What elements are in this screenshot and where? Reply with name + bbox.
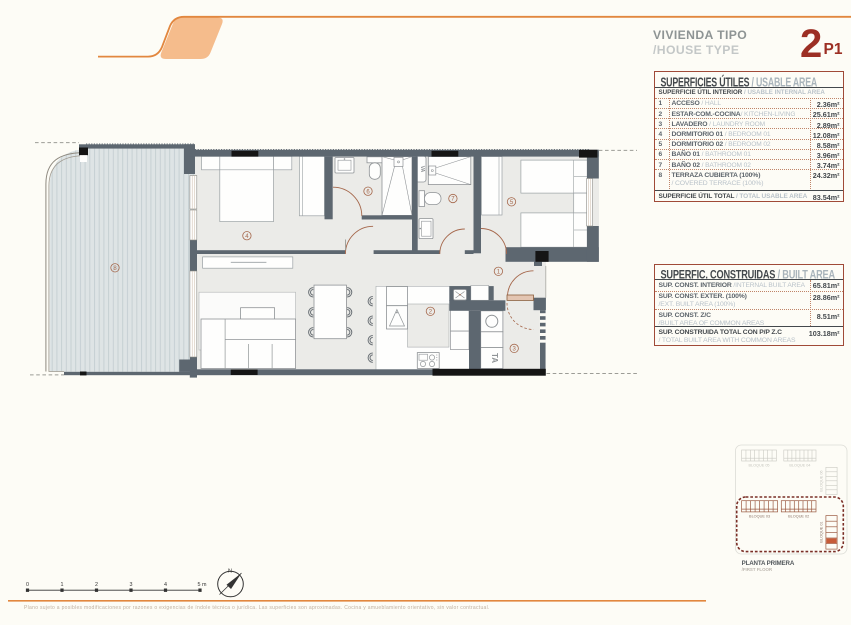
svg-text:1: 1 <box>61 582 64 588</box>
svg-text:BLOQUE 03: BLOQUE 03 <box>749 515 770 519</box>
svg-text:3: 3 <box>130 582 133 588</box>
svg-text:N: N <box>228 569 232 575</box>
svg-text:/FIRST FLOOR: /FIRST FLOOR <box>742 567 773 572</box>
svg-text:2: 2 <box>95 582 98 588</box>
svg-text:BLOQUE 05: BLOQUE 05 <box>748 464 769 468</box>
svg-text:BLOQUE 02: BLOQUE 02 <box>788 515 809 519</box>
svg-text:0: 0 <box>26 582 29 588</box>
svg-text:BLOQUE 04: BLOQUE 04 <box>789 464 810 468</box>
svg-text:PLANTA PRIMERA: PLANTA PRIMERA <box>742 560 795 567</box>
svg-text:BLOQUE 01: BLOQUE 01 <box>820 521 824 542</box>
svg-text:5 m: 5 m <box>198 582 207 588</box>
svg-text:TA: TA <box>490 353 499 363</box>
svg-text:BLOQUE 06: BLOQUE 06 <box>820 470 824 491</box>
svg-text:4: 4 <box>164 582 167 588</box>
svg-text:VA: VA <box>419 166 425 173</box>
